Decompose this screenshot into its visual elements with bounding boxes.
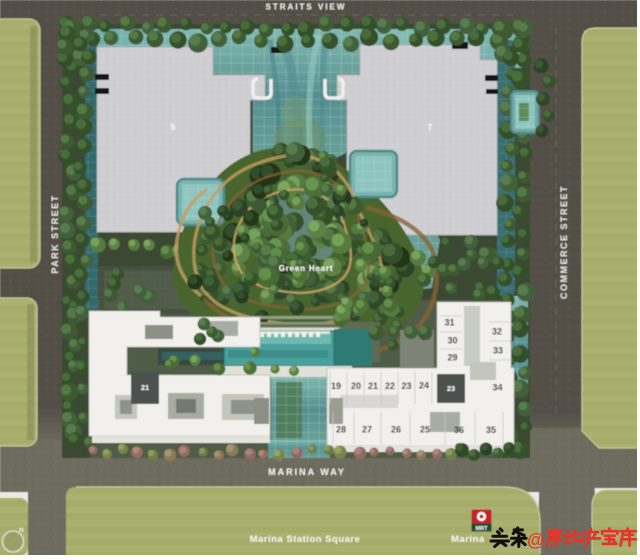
svg-text:30: 30 <box>447 336 457 346</box>
svg-text:26: 26 <box>391 425 401 435</box>
svg-text:Green Heart: Green Heart <box>279 264 334 273</box>
svg-text:20: 20 <box>351 381 361 391</box>
svg-text:25: 25 <box>420 425 430 435</box>
svg-text:29: 29 <box>447 353 457 363</box>
svg-text:19: 19 <box>331 381 341 391</box>
svg-text:21: 21 <box>368 381 378 391</box>
svg-text:33: 33 <box>493 346 503 356</box>
svg-text:28: 28 <box>336 425 346 435</box>
svg-text:N: N <box>19 527 24 534</box>
svg-text:21: 21 <box>141 383 149 392</box>
svg-text:STRAITS VIEW: STRAITS VIEW <box>266 3 347 12</box>
svg-text:Marina Station Square: Marina Station Square <box>250 534 361 545</box>
svg-text:MARINA WAY: MARINA WAY <box>268 467 346 477</box>
svg-text:23: 23 <box>401 381 411 391</box>
svg-text:22: 22 <box>385 381 395 391</box>
svg-text:32: 32 <box>492 327 502 337</box>
svg-text:23: 23 <box>447 384 455 393</box>
svg-text:Marina: Marina <box>451 534 485 545</box>
svg-text:5: 5 <box>171 123 176 132</box>
svg-text:24: 24 <box>419 381 429 391</box>
svg-text:34: 34 <box>492 383 502 393</box>
svg-text:7: 7 <box>428 123 433 132</box>
svg-text:MRT: MRT <box>476 526 489 532</box>
svg-text:35: 35 <box>486 425 496 435</box>
svg-text:27: 27 <box>362 425 372 435</box>
svg-text:PARK STREET: PARK STREET <box>50 194 60 273</box>
svg-text:COMMERCE STREET: COMMERCE STREET <box>559 185 569 299</box>
svg-text:31: 31 <box>444 318 454 328</box>
svg-text:36: 36 <box>454 425 464 435</box>
svg-text:@: @ <box>527 530 545 550</box>
